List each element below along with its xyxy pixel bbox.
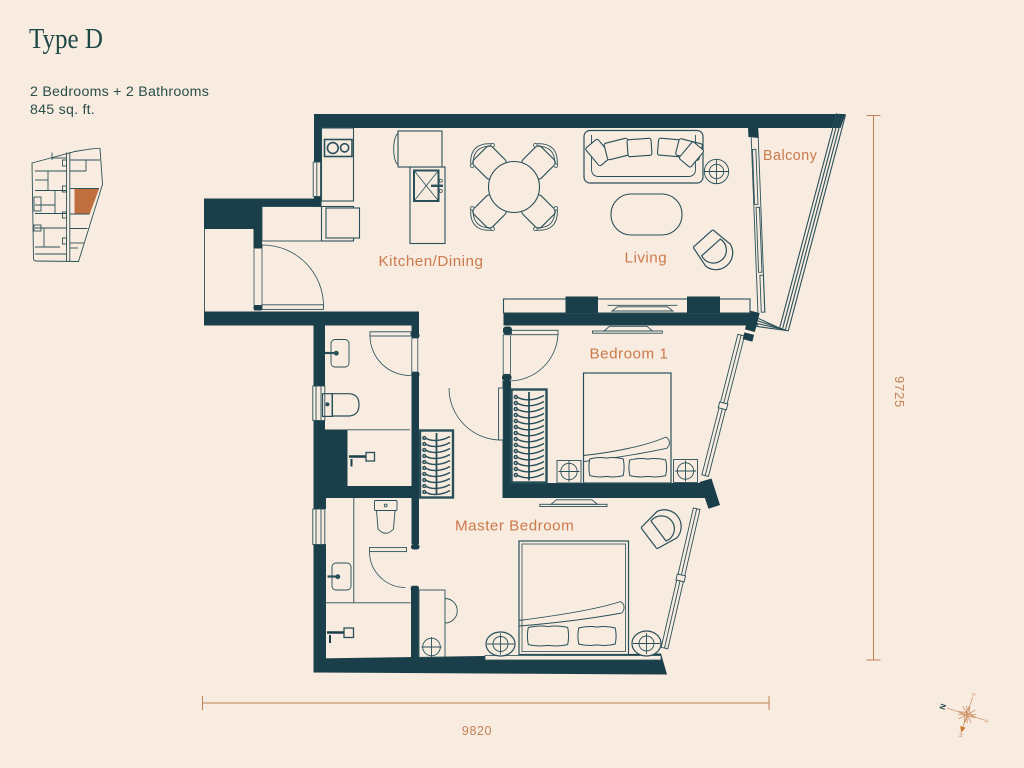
svg-text:Balcony: Balcony <box>763 148 818 164</box>
svg-text:2 Bedrooms + 2 Bathrooms: 2 Bedrooms + 2 Bathrooms <box>30 84 209 100</box>
svg-text:9820: 9820 <box>462 724 492 738</box>
svg-text:Master Bedroom: Master Bedroom <box>455 518 574 535</box>
svg-text:Kitchen/Dining: Kitchen/Dining <box>379 253 484 270</box>
svg-text:Bedroom 1: Bedroom 1 <box>590 346 669 363</box>
svg-text:9725: 9725 <box>892 376 907 408</box>
svg-text:Type D: Type D <box>29 23 103 55</box>
svg-text:845 sq. ft.: 845 sq. ft. <box>30 102 95 118</box>
svg-text:Living: Living <box>625 250 668 267</box>
